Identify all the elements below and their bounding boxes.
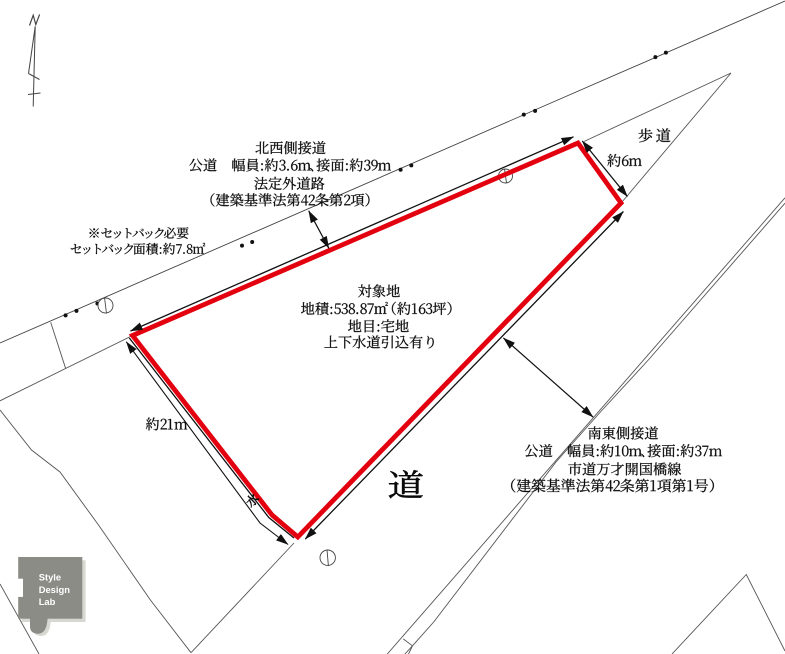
svg-text:Design: Design	[39, 584, 71, 595]
svg-text:Lab: Lab	[39, 596, 56, 607]
svg-text:Style: Style	[39, 572, 61, 583]
